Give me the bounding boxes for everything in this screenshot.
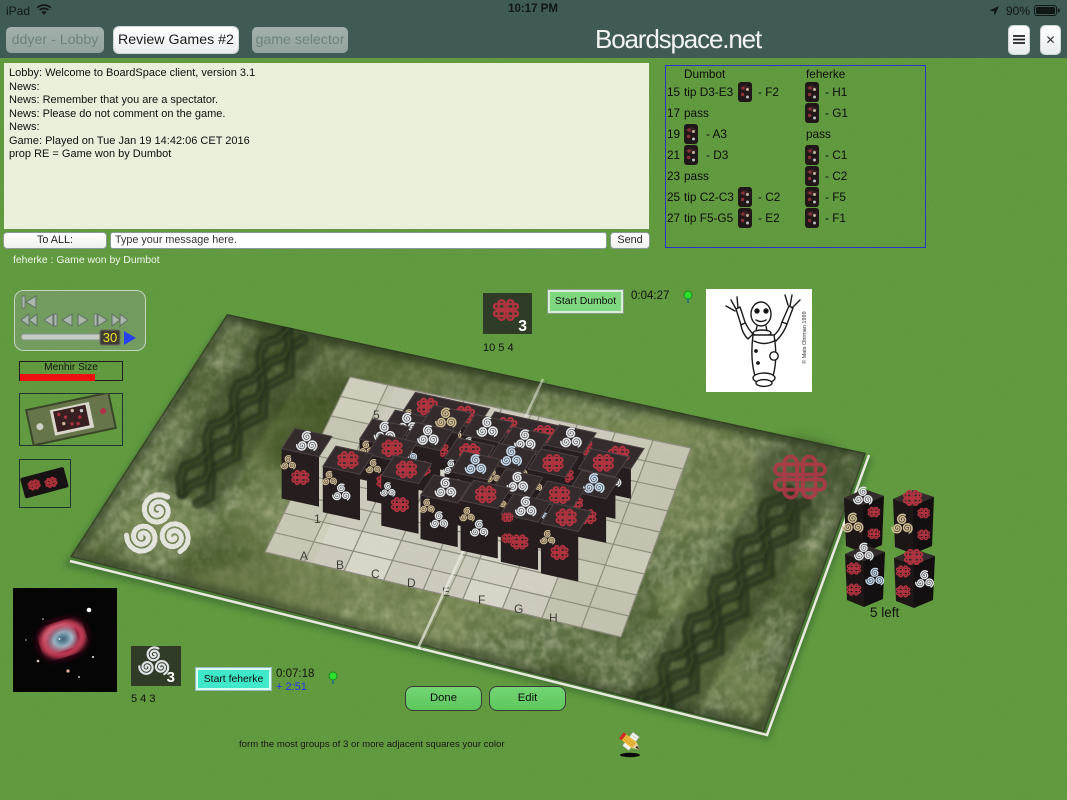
svg-text:D: D [407, 576, 416, 590]
svg-text:pass: pass [684, 169, 709, 183]
svg-text:A: A [300, 549, 308, 563]
svg-text:- C2: - C2 [825, 169, 847, 183]
svg-text:1: 1 [314, 512, 321, 526]
svg-text:- E2: - E2 [758, 211, 780, 225]
svg-text:- D3: - D3 [706, 148, 729, 162]
svg-text:17: 17 [667, 106, 680, 120]
svg-text:feherke: feherke [806, 67, 846, 81]
svg-text:3: 3 [518, 318, 527, 334]
svg-text:© Mats Ohrman 1999: © Mats Ohrman 1999 [801, 311, 808, 364]
svg-text:tip D3-E3: tip D3-E3 [684, 85, 734, 99]
svg-text:- G1: - G1 [825, 106, 848, 120]
svg-text:- C1: - C1 [825, 148, 847, 162]
svg-text:23: 23 [667, 169, 681, 183]
svg-text:G: G [514, 602, 523, 616]
svg-text:pass: pass [684, 106, 709, 120]
svg-text:- H1: - H1 [825, 85, 847, 99]
svg-text:- F2: - F2 [758, 85, 779, 99]
svg-text:C: C [371, 567, 380, 581]
svg-text:tip F5-G5: tip F5-G5 [684, 211, 734, 225]
svg-text:Dumbot: Dumbot [684, 67, 726, 81]
svg-text:27: 27 [667, 211, 680, 225]
svg-text:F: F [478, 593, 485, 607]
svg-text:- C2: - C2 [758, 190, 780, 204]
svg-text:25: 25 [667, 190, 681, 204]
svg-text:tip C2-C3: tip C2-C3 [684, 190, 734, 204]
svg-text:- F1: - F1 [825, 211, 846, 225]
svg-text:B: B [336, 558, 344, 572]
svg-text:3: 3 [167, 669, 175, 686]
svg-text:pass: pass [806, 127, 831, 141]
svg-text:30: 30 [103, 330, 117, 345]
svg-text:- A3: - A3 [706, 127, 727, 141]
svg-text:- F5: - F5 [825, 190, 846, 204]
svg-text:19: 19 [667, 127, 680, 141]
svg-text:15: 15 [667, 85, 681, 99]
svg-text:21: 21 [667, 148, 680, 162]
svg-text:H: H [549, 611, 558, 625]
